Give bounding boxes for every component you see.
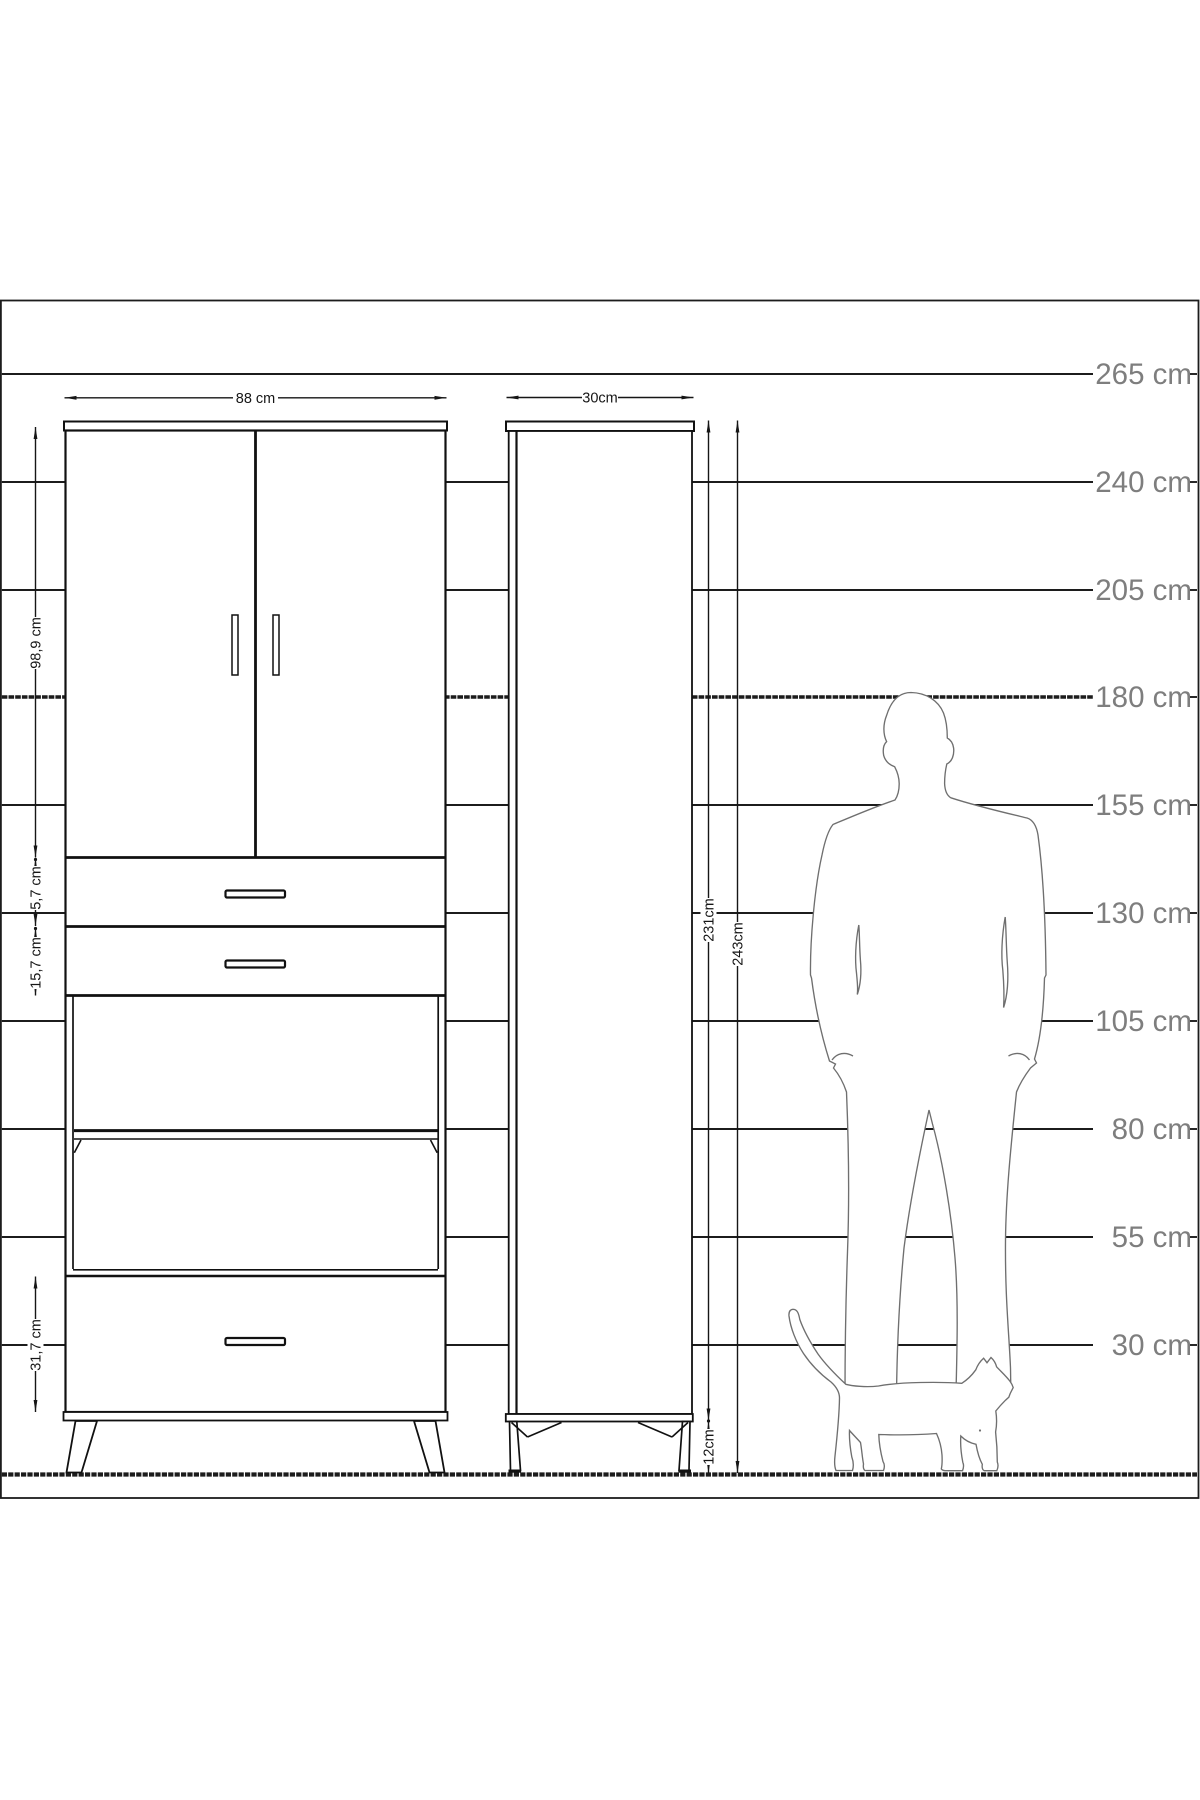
svg-text:265 cm: 265 cm — [1095, 358, 1192, 391]
svg-text:30 cm: 30 cm — [1112, 1329, 1192, 1362]
svg-text:180 cm: 180 cm — [1095, 681, 1192, 714]
svg-text:130 cm: 130 cm — [1095, 897, 1192, 930]
svg-text:231cm: 231cm — [702, 898, 718, 942]
svg-text:31,7 cm: 31,7 cm — [29, 1319, 45, 1371]
svg-text:55 cm: 55 cm — [1112, 1221, 1192, 1254]
svg-text:243cm: 243cm — [731, 922, 747, 966]
svg-text:30cm: 30cm — [582, 391, 617, 407]
svg-text:240 cm: 240 cm — [1095, 466, 1192, 499]
svg-text:205 cm: 205 cm — [1095, 574, 1192, 607]
svg-text:155 cm: 155 cm — [1095, 789, 1192, 822]
svg-text:88 cm: 88 cm — [236, 391, 276, 407]
svg-text:5,7 cm: 5,7 cm — [29, 866, 45, 910]
svg-text:98,9 cm: 98,9 cm — [29, 617, 45, 669]
svg-text:80 cm: 80 cm — [1112, 1113, 1192, 1146]
svg-text:105 cm: 105 cm — [1095, 1005, 1192, 1038]
svg-text:12cm: 12cm — [702, 1429, 718, 1464]
svg-text:15,7 cm: 15,7 cm — [29, 937, 45, 989]
